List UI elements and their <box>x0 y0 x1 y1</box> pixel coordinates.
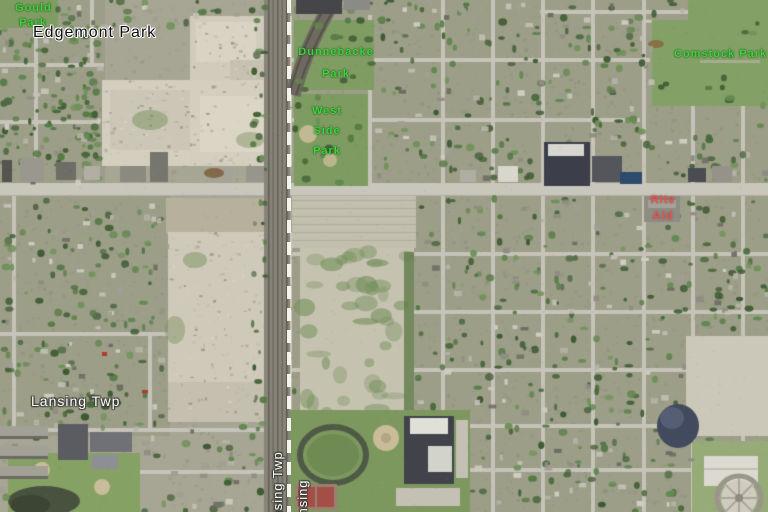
aerial-imagery-canvas[interactable] <box>0 0 768 512</box>
map-viewport[interactable]: Gould Park Edgemont Park Dunnebacke Park… <box>0 0 768 512</box>
township-boundary-line <box>287 0 291 512</box>
